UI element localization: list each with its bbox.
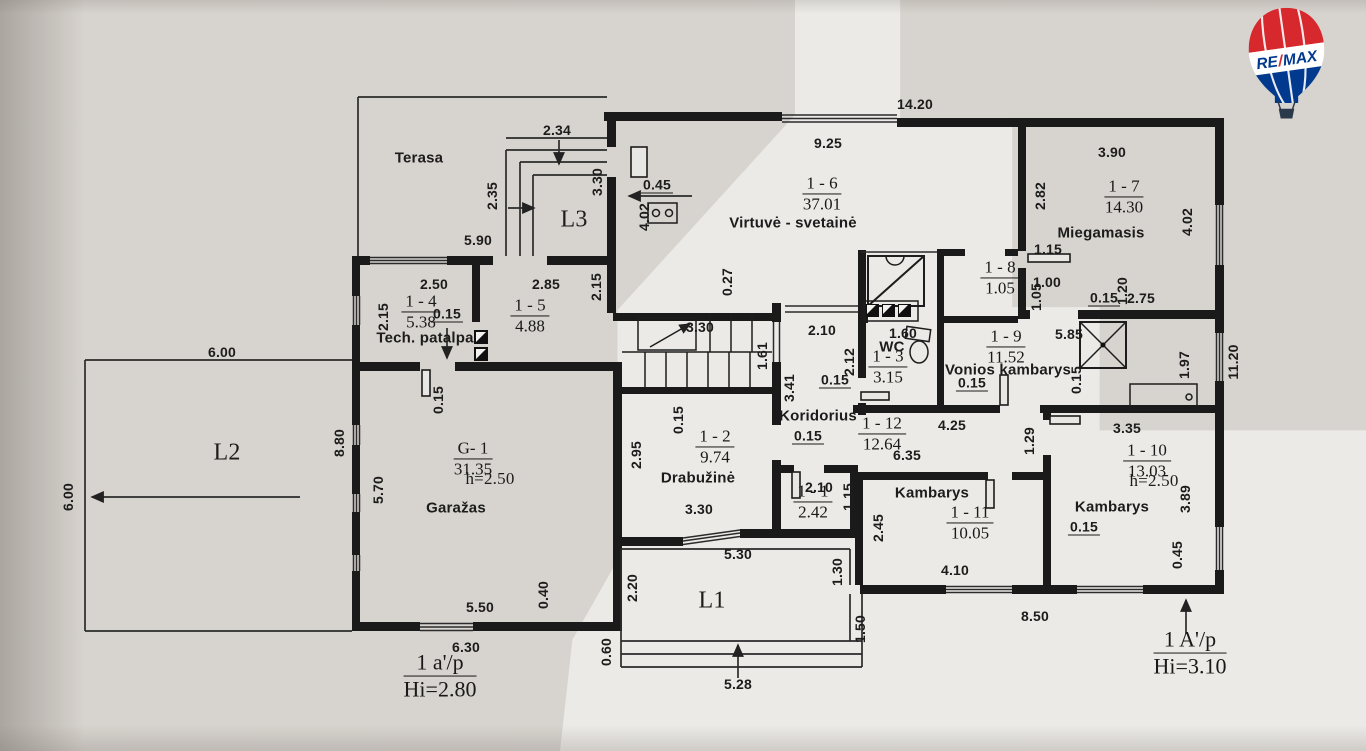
room-code-area-label: 1 - 1110.05 — [946, 502, 993, 543]
dimension-label: 0.15 — [1088, 290, 1120, 307]
dimension-label: 2.85 — [532, 276, 560, 292]
dimension-label: 1.15 — [840, 483, 856, 511]
dimension-label: 0.60 — [598, 638, 614, 666]
dimension-label: 2.35 — [484, 182, 500, 210]
room-code-area-label: 1 - 1212.64 — [858, 413, 906, 454]
room-code-area-label: G- 131.35 — [454, 438, 493, 479]
dimension-label: 2.75 — [1127, 290, 1155, 306]
dimension-label: 5.50 — [466, 599, 494, 615]
section-annotation-right: 1 A'/pHi=3.10 — [1154, 627, 1227, 680]
room-name-label: Koridorius — [779, 408, 857, 425]
dimension-label: 2.20 — [624, 574, 640, 602]
dimension-label: 2.10 — [808, 322, 836, 338]
dimension-label: 4.02 — [636, 203, 652, 231]
room-code-area-label: 1 - 33.15 — [868, 346, 907, 387]
dimension-label: 2.34 — [543, 122, 571, 138]
remax-logo: RE/MAX — [1238, 5, 1335, 133]
scanned-floor-plan-photo: 14.202.349.253.902.353.300.452.824.024.0… — [0, 0, 1366, 751]
dimension-label: 0.15 — [819, 372, 851, 389]
room-code-area-label: 1 - 45.38 — [401, 291, 440, 332]
room-code-area-label: 1 - 54.88 — [510, 295, 549, 336]
dimension-label: 1.05 — [1028, 283, 1044, 311]
dimension-label: 2.82 — [1032, 182, 1048, 210]
room-code-area-label: 1 - 911.52 — [986, 326, 1025, 367]
room-name-label: Miegamasis — [1057, 225, 1144, 242]
dimension-label: 4.10 — [941, 562, 969, 578]
zone-label: L2 — [213, 440, 240, 467]
dimension-label: 0.15 — [670, 406, 686, 434]
dimension-label: 0.40 — [535, 581, 551, 609]
dimension-label: 0.45 — [641, 177, 673, 194]
dimension-label: 5.90 — [464, 232, 492, 248]
dimension-label: 1.61 — [754, 342, 770, 370]
dimension-label: 0.15 — [792, 428, 824, 445]
dimension-label: 6.00 — [60, 483, 76, 511]
room-name-label: Kambarys — [1075, 499, 1149, 516]
dimension-label: 2.45 — [870, 514, 886, 542]
room-name-label: Garažas — [426, 500, 486, 517]
plan-labels: 14.202.349.253.902.353.300.452.824.024.0… — [0, 0, 1366, 751]
dimension-label: 4.02 — [1179, 208, 1195, 236]
dimension-label: 3.30 — [685, 501, 713, 517]
dimension-label: 5.28 — [724, 676, 752, 692]
dimension-label: 8.50 — [1021, 608, 1049, 624]
balloon-basket-icon — [1278, 101, 1295, 118]
dimension-label: 0.45 — [1169, 541, 1185, 569]
dimension-label: 2.50 — [420, 276, 448, 292]
room-code-area-label: 1 - 637.01 — [802, 173, 841, 214]
dimension-label: 2.15 — [588, 273, 604, 301]
room-code-area-label: 1 - 29.74 — [695, 426, 734, 467]
dimension-label: 14.20 — [897, 96, 933, 112]
dimension-label: 1.29 — [1021, 427, 1037, 455]
dimension-label: 1.97 — [1176, 351, 1192, 379]
room-name-label: Terasa — [395, 150, 443, 167]
dimension-label: 1.50 — [852, 615, 868, 643]
dimension-label: 0.15 — [430, 386, 446, 414]
dimension-label: 4.25 — [938, 417, 966, 433]
dimension-label: 3.41 — [781, 374, 797, 402]
dimension-label: 3.30 — [686, 319, 714, 335]
zone-label: L3 — [560, 207, 587, 234]
zone-label: L1 — [698, 588, 725, 615]
dimension-label: 6.00 — [208, 344, 236, 360]
room-code-area-label: 1 - 1013.03 — [1123, 440, 1171, 481]
dimension-label: 1.15 — [1034, 241, 1062, 257]
room-name-label: Kambarys — [895, 485, 969, 502]
dimension-label: 11.20 — [1225, 344, 1241, 379]
dimension-label: 5.85 — [1055, 326, 1083, 342]
dimension-label: 0.15 — [1068, 519, 1100, 536]
dimension-label: 1.30 — [829, 558, 845, 586]
dimension-label: 5.70 — [370, 476, 386, 504]
dimension-label: 3.30 — [589, 168, 605, 196]
room-code-area-label: 1 - 12.42 — [793, 481, 832, 522]
dimension-label: 2.15 — [375, 303, 391, 331]
dimension-label: 8.80 — [331, 429, 347, 457]
dimension-label: 0.27 — [719, 268, 735, 296]
section-annotation-left: 1 a'/pHi=2.80 — [404, 650, 477, 703]
dimension-label: 3.35 — [1113, 420, 1141, 436]
dimension-label: 3.90 — [1098, 144, 1126, 160]
dimension-label: 5.30 — [724, 546, 752, 562]
room-code-area-label: 1 - 714.30 — [1104, 176, 1143, 217]
dimension-label: 3.89 — [1177, 485, 1193, 513]
room-name-label: Drabužinė — [661, 470, 735, 487]
room-name-label: Virtuvė - svetainė — [729, 215, 857, 232]
dimension-label: 2.95 — [628, 441, 644, 469]
dimension-label: 9.25 — [814, 135, 842, 151]
room-code-area-label: 1 - 81.05 — [980, 257, 1019, 298]
